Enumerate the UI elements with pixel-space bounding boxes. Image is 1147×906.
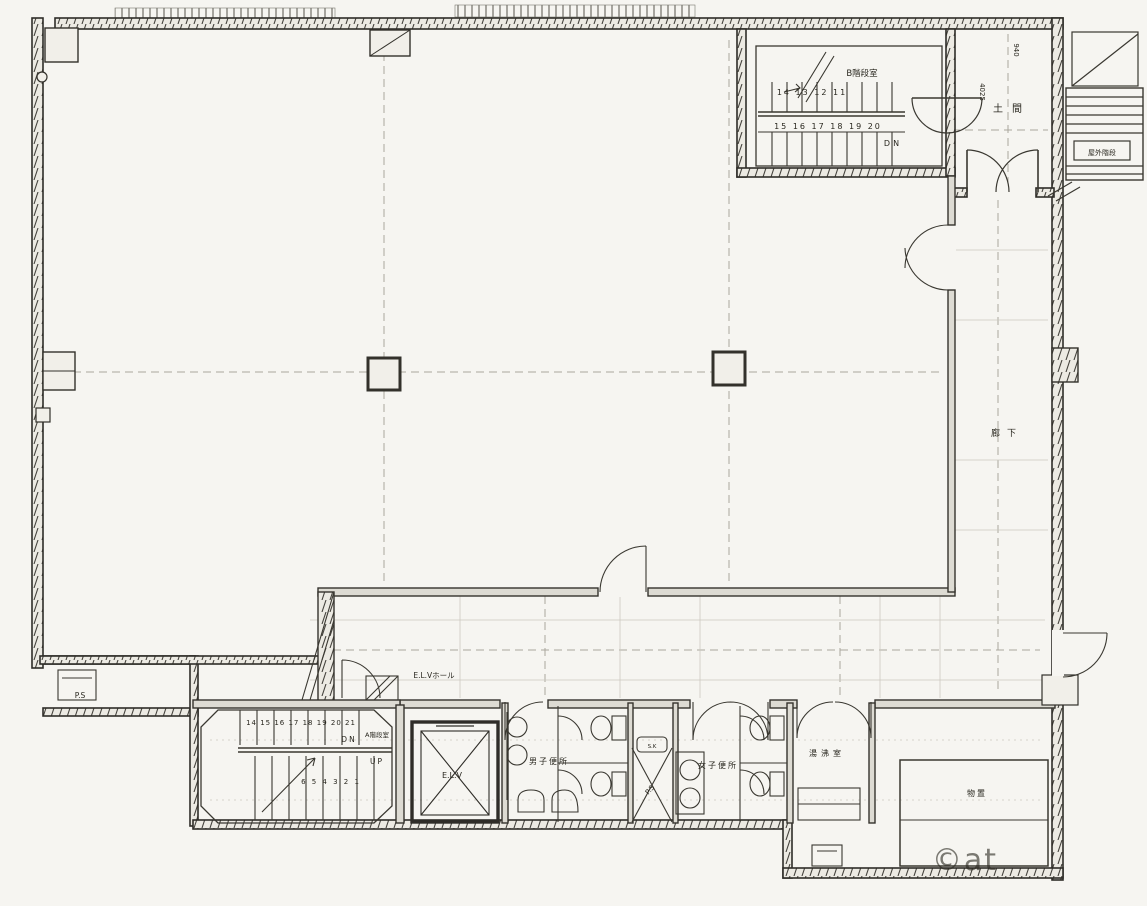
labels: 14 13 12 11 15 16 17 18 19 20 DN B階段室 土間… — [75, 43, 1116, 878]
elevator-label: E.L.V — [442, 771, 463, 780]
entrance-label: 土間 — [993, 102, 1031, 115]
floor-plan-canvas: 14 13 12 11 15 16 17 18 19 20 DN B階段室 土間… — [0, 0, 1147, 906]
ps-left-label: P.S — [75, 691, 86, 700]
stair-a-numbers-bottom-label: 6 5 4 3 2 1 — [301, 778, 361, 786]
outdoor-stair-label: 屋外階段 — [1088, 148, 1116, 157]
slop-sink-label: S.K — [648, 744, 657, 750]
outer-walls — [32, 18, 1063, 880]
columns-and-wall-fixtures — [36, 28, 1078, 705]
corridor-label: 廊下 — [991, 427, 1023, 439]
storage-label: 物置 — [967, 788, 987, 798]
dim-4025-label: 4025 — [978, 83, 986, 101]
stair-b-dn-label: DN — [884, 139, 902, 148]
kitchenette-label: 湯沸室 — [809, 748, 845, 758]
stair-b-numbers-top-label: 14 13 12 11 — [777, 88, 847, 97]
womens-toilet-label: 女子便所 — [698, 760, 738, 770]
stair-a-up-label: UP — [370, 757, 384, 766]
stair-b-numbers-bottom-label: 15 16 17 18 19 20 — [774, 122, 882, 131]
ps-center-label: P.S — [644, 783, 657, 796]
dim-940-label: 940 — [1012, 43, 1020, 56]
stair-a-name-label: A階段室 — [365, 730, 389, 739]
stair-a-numbers-top-label: 14 15 16 17 18 19 20 21 — [246, 719, 356, 727]
ds-shaft — [302, 592, 398, 700]
mens-toilet-label: 男子便所 — [529, 756, 569, 766]
stair-b — [756, 46, 942, 166]
floor-plan-drawing: 14 13 12 11 15 16 17 18 19 20 DN B階段室 土間… — [0, 0, 1147, 906]
stair-b-name-label: B階段室 — [846, 68, 878, 79]
top-wall-hatch — [115, 5, 695, 19]
watermark-text: ©at — [932, 843, 998, 878]
grid-lines — [60, 34, 1048, 696]
door-openings — [599, 226, 1064, 676]
stair-a-dn-label: DN — [341, 735, 356, 744]
elv-hall-label: E.L.Vホール — [413, 671, 455, 680]
